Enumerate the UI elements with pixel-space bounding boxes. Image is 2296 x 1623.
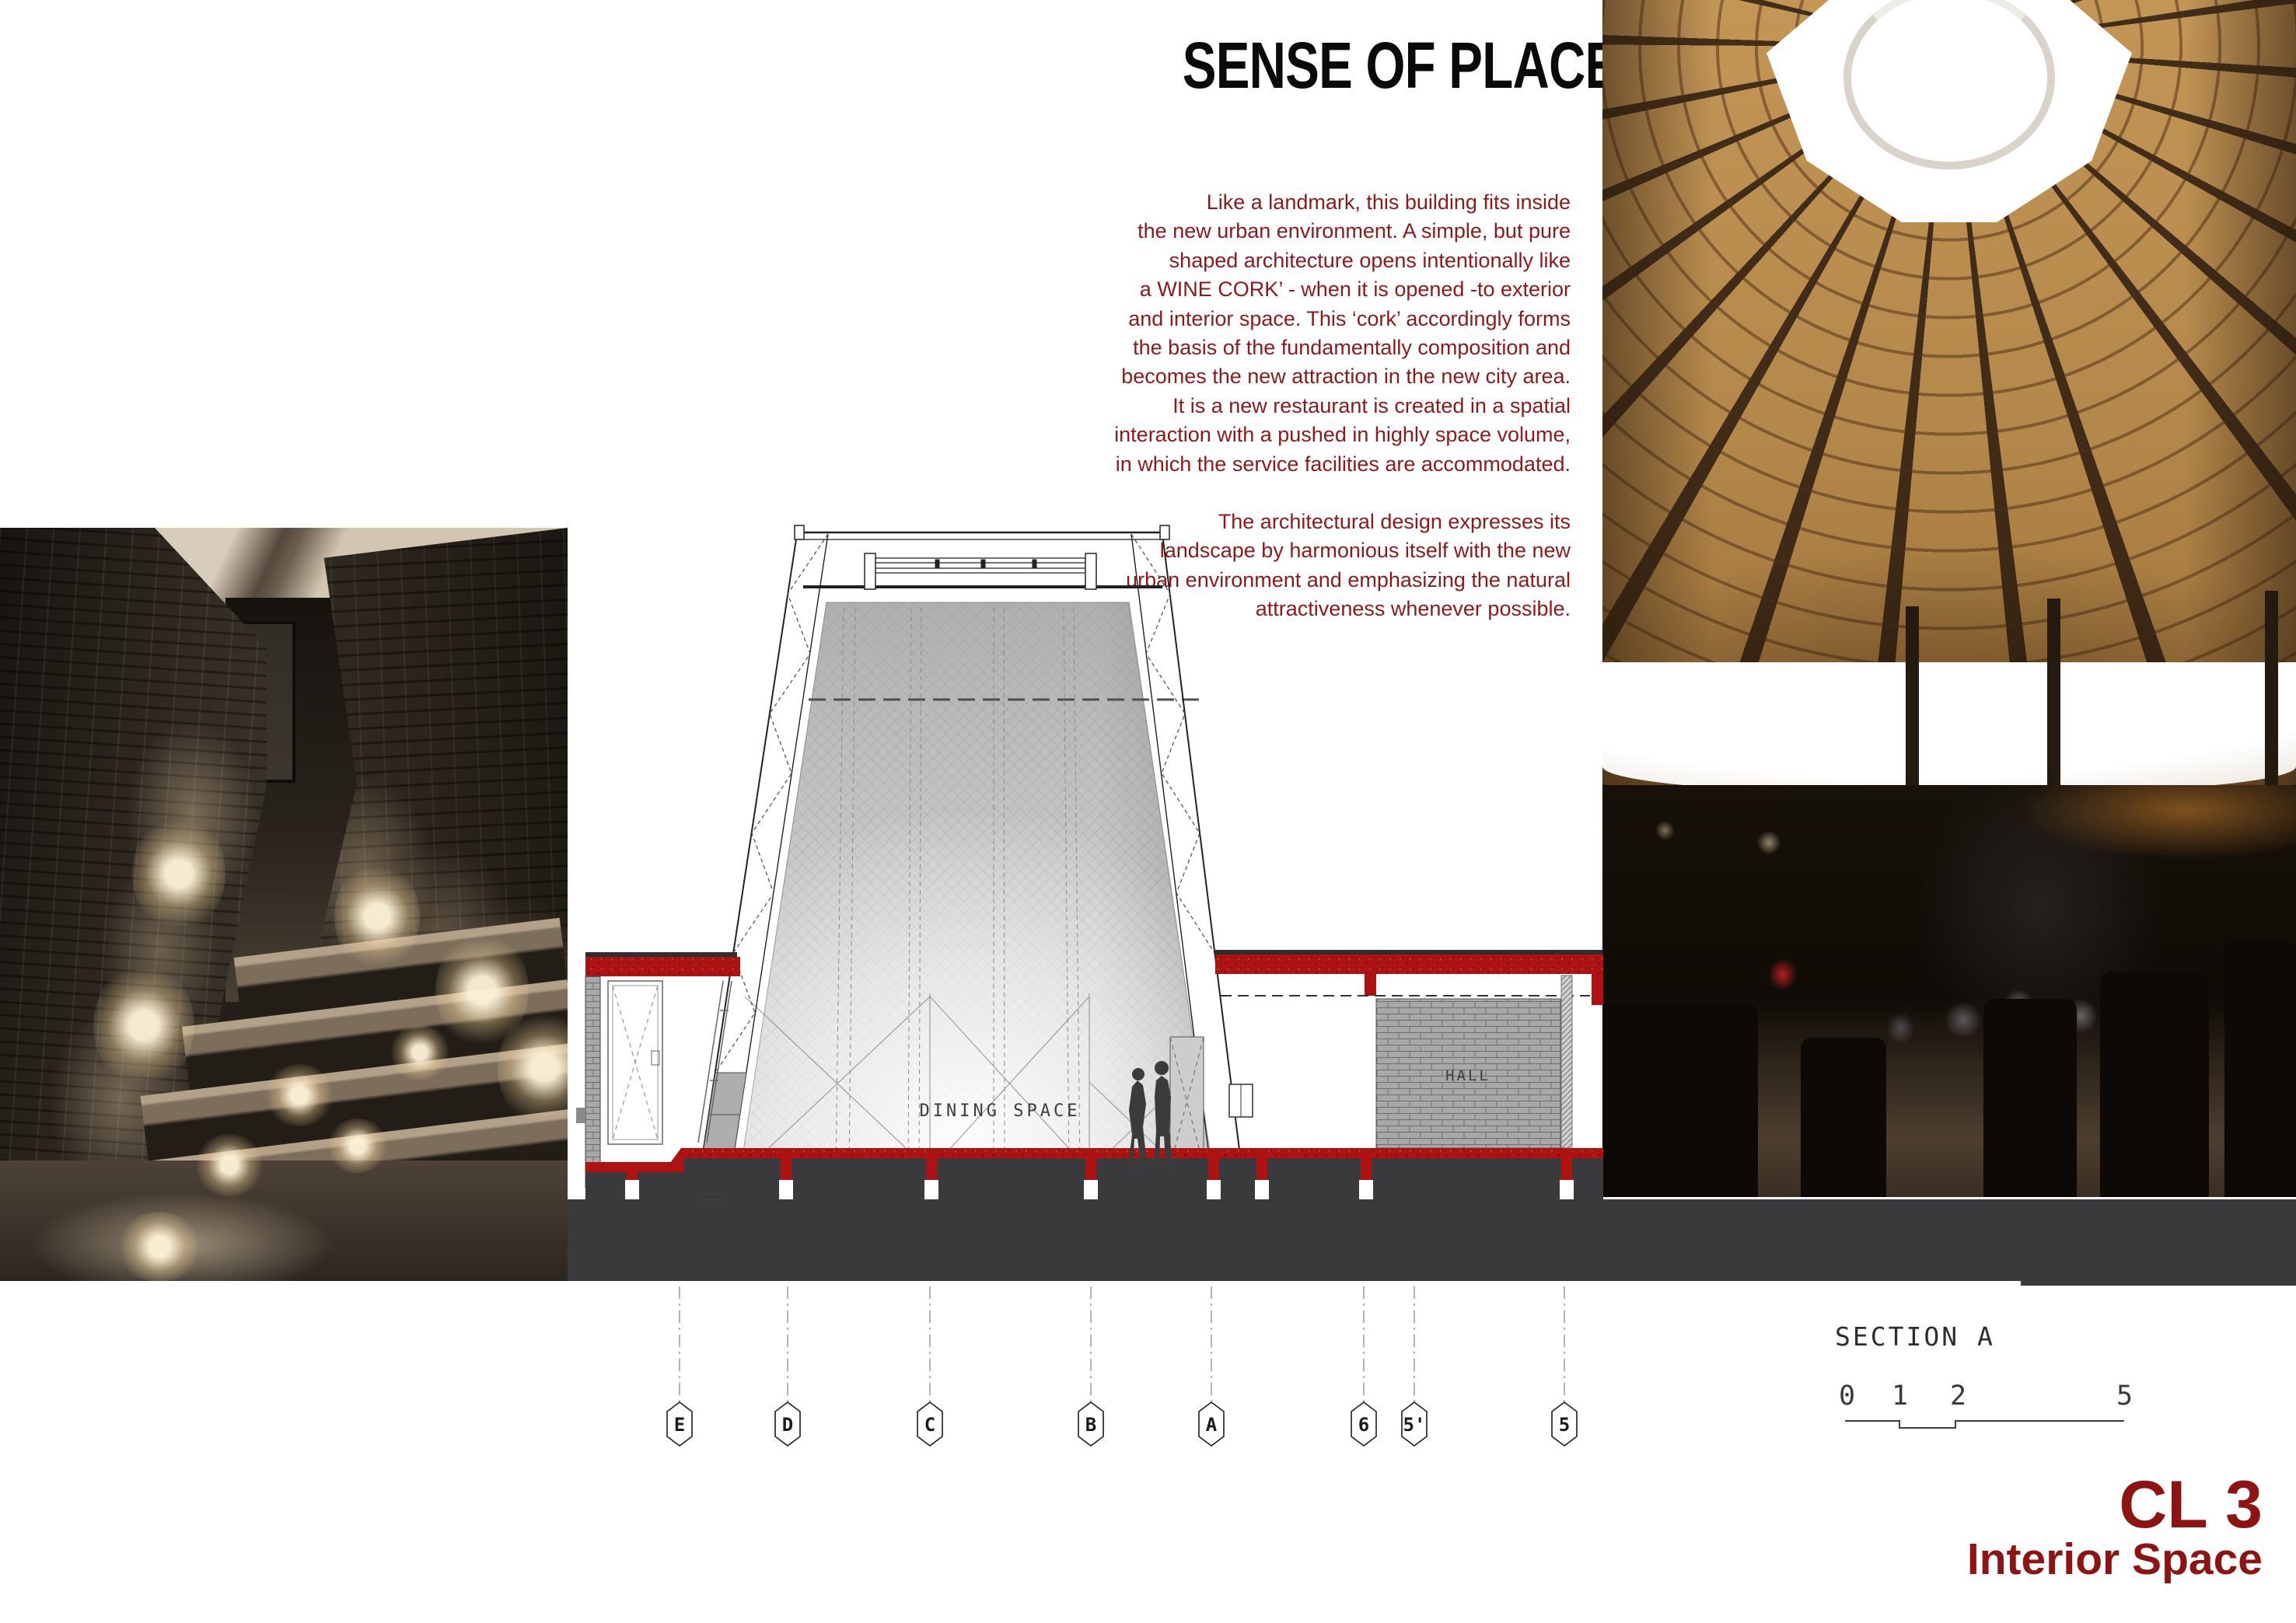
grid-bubble-label: E — [674, 1414, 685, 1436]
wall-light — [334, 862, 420, 971]
intro-line: the basis of the fundamentally compositi… — [933, 333, 1571, 362]
stone-corridor-photo — [0, 528, 568, 1281]
grid-bubble-label: A — [1206, 1414, 1218, 1436]
scale-tick: 5 — [2116, 1380, 2133, 1412]
chair-silhouette — [2100, 972, 2209, 1197]
structural-post — [2047, 599, 2060, 801]
hatched-column — [1561, 976, 1572, 1148]
chair-silhouette — [1801, 1038, 1886, 1197]
page-title: SENSE OF PLACE — [1183, 28, 1571, 103]
scale-bar — [1843, 1415, 2127, 1435]
brick-pier — [585, 976, 600, 1188]
chair-silhouette — [2224, 941, 2296, 1197]
ground-band-step — [2021, 1281, 2296, 1286]
grid-bubble-label: D — [782, 1414, 793, 1436]
intro-paragraph-1: Like a landmark, this building fits insi… — [933, 188, 1571, 479]
wall-light — [93, 963, 194, 1087]
intro-line: a WINE CORK’ - when it is opened -to ext… — [933, 275, 1571, 304]
step-light — [194, 1134, 264, 1196]
grid-bubble-label: B — [1085, 1414, 1096, 1436]
step-light — [389, 1025, 451, 1080]
step-light — [264, 1064, 334, 1126]
floor-light — [117, 1212, 202, 1281]
intro-line: It is a new restaurant is created in a s… — [933, 392, 1571, 421]
sheet-code: CL 3 — [1788, 1471, 2263, 1538]
grid-bubble-label: 6 — [1358, 1414, 1369, 1436]
presentation-board: SENSE OF PLACE Like a landmark, this bui… — [0, 0, 2296, 1623]
corridor-floor — [0, 1161, 568, 1281]
structural-post — [2265, 591, 2278, 808]
intro-line: Like a landmark, this building fits insi… — [933, 188, 1571, 217]
scale-tick: 1 — [1892, 1380, 1908, 1412]
floor-assembly — [585, 1148, 1603, 1199]
dining-space-label: DINING SPACE — [920, 1101, 1081, 1121]
section-title: SECTION A — [1835, 1321, 1995, 1352]
intro-line: shaped architecture opens intentionally … — [933, 246, 1571, 275]
dining-room-scene — [1602, 785, 2296, 1197]
scale-bar-ticks: 0 1 2 5 — [1835, 1380, 2161, 1415]
grid-bubble-label: 5' — [1403, 1414, 1426, 1436]
hall-label: HALL — [1445, 1067, 1490, 1084]
chair-silhouette — [1983, 999, 2077, 1197]
structural-post — [1906, 606, 1919, 793]
grid-bubble-label: 5 — [1559, 1414, 1570, 1436]
intro-line: and interior space. This ‘cork’ accordin… — [933, 305, 1571, 333]
scale-tick: 0 — [1839, 1380, 1855, 1412]
scale-tick: 2 — [1950, 1380, 1966, 1412]
grid-markers: E D C B A 6 5' 5 — [667, 1286, 1577, 1446]
right-annex: HALL — [1215, 950, 1603, 1148]
intro-line: the new urban environment. A simple, but… — [933, 217, 1571, 246]
sheet-name: Interior Space — [1788, 1537, 2263, 1582]
grid-bubble-label: C — [924, 1414, 935, 1436]
roof — [795, 525, 1169, 587]
intro-line: interaction with a pushed in highly spac… — [933, 421, 1571, 449]
intro-line: in which the service facilities are acco… — [933, 450, 1571, 479]
step-light — [327, 1119, 389, 1173]
roof-lantern — [865, 553, 1096, 589]
section-a-drawing: HALL — [571, 521, 1613, 1454]
wall-light — [132, 815, 225, 932]
dome-restaurant-photo — [1602, 0, 2296, 1197]
skylight-circle — [1843, 0, 2055, 169]
dome-base-wall — [1602, 662, 2296, 793]
chair-silhouette — [1602, 1003, 1758, 1197]
intro-line: becomes the new attraction in the new ci… — [933, 362, 1571, 391]
